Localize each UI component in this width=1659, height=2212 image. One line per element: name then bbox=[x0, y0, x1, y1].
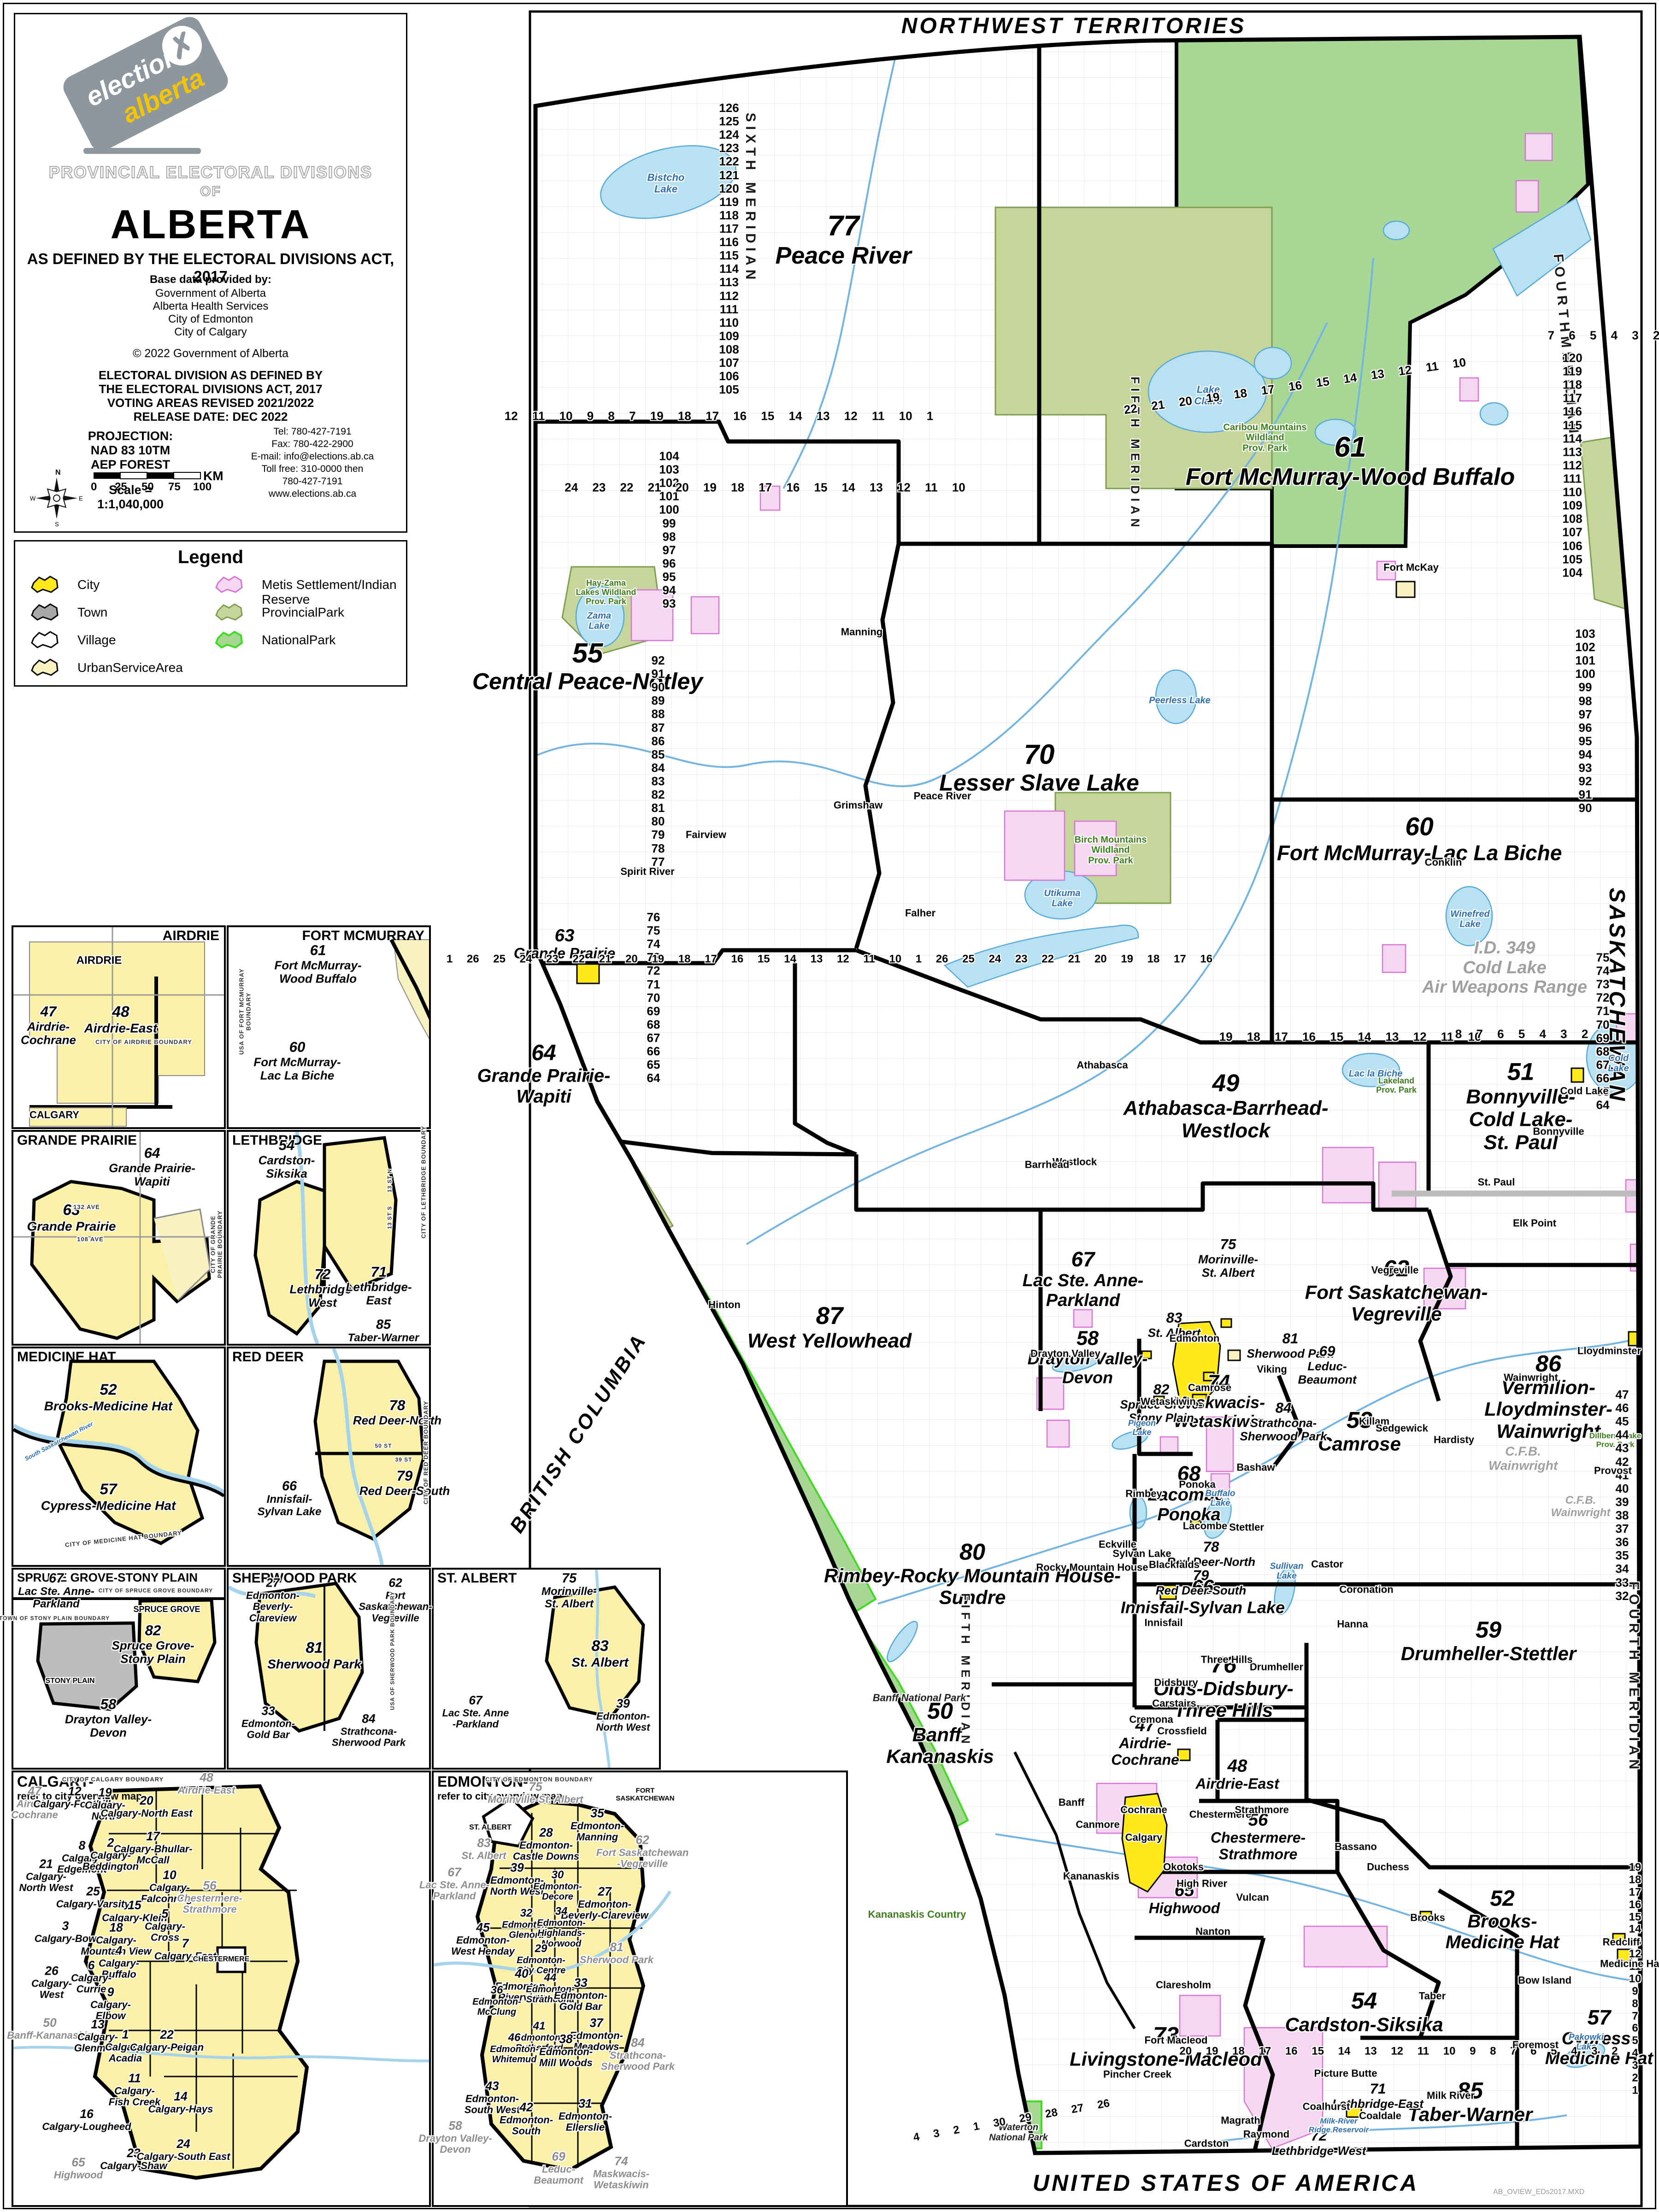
contact-web: www.elections.ab.ca bbox=[236, 488, 388, 500]
inset-fort-mcmurray: FORT MCMURRAY bbox=[227, 925, 431, 1129]
inset-airdrie-header: AIRDRIE bbox=[163, 928, 219, 944]
inset-st-albert-header: ST. ALBERT bbox=[437, 1571, 517, 1586]
base-data-3: City of Edmonton bbox=[15, 313, 406, 326]
inset-airdrie: AIRDRIE bbox=[12, 925, 226, 1129]
inset-spruce-grove: SPRUCE GROVE-STONY PLAIN bbox=[12, 1568, 226, 1770]
legend-label-town: Town bbox=[77, 605, 107, 620]
base-data-1: Government of Alberta bbox=[15, 287, 406, 300]
scale-tick-50: 50 bbox=[141, 481, 154, 494]
inset-lethbridge-header: LETHBRIDGE bbox=[232, 1133, 322, 1148]
legend-label-provpark: ProvincialPark bbox=[262, 605, 344, 620]
compass-s: S bbox=[55, 521, 59, 528]
projection-label: PROJECTION: bbox=[75, 429, 186, 443]
contact-fax: Fax: 780-422-2900 bbox=[236, 438, 388, 450]
inset-st-albert: ST. ALBERT bbox=[432, 1568, 661, 1770]
base-data-4: City of Calgary bbox=[15, 326, 406, 339]
base-data-2: Alberta Health Services bbox=[15, 300, 406, 313]
legend-swatch-metis bbox=[216, 577, 242, 592]
inset-medicine-hat-map bbox=[13, 1348, 224, 1565]
scale-tick-75: 75 bbox=[168, 481, 181, 494]
sheet-footnote: AB_OVIEW_EDs2017.MXD bbox=[1493, 2188, 1584, 2196]
inset-lethbridge-map bbox=[229, 1132, 429, 1344]
inset-red-deer-header: RED DEER bbox=[232, 1349, 304, 1365]
compass-rose-icon: N E S W bbox=[29, 468, 84, 528]
inset-grande-prairie: GRANDE PRAIRIE bbox=[12, 1130, 226, 1346]
legend-title: Legend bbox=[15, 547, 406, 568]
contact-email: E-mail: info@elections.ab.ca bbox=[236, 450, 388, 463]
inset-lethbridge: LETHBRIDGE bbox=[227, 1130, 431, 1346]
inset-fort-mcmurray-header: FORT MCMURRAY bbox=[302, 928, 424, 944]
inset-airdrie-map bbox=[13, 927, 224, 1127]
projection-block: PROJECTION: NAD 83 10TM AEP FOREST Scale… bbox=[75, 429, 186, 512]
title-block: elections alberta ✗ PROVINCIAL ELECTORAL… bbox=[14, 13, 407, 533]
inset-sherwood-park-map bbox=[229, 1570, 429, 1768]
inset-spruce-grove-header: SPRUCE GROVE-STONY PLAIN bbox=[17, 1571, 198, 1585]
inset-calgary-header: CALGARY- refer to city overview map bbox=[17, 1773, 142, 1802]
inset-edmonton-map bbox=[434, 1772, 846, 2205]
inset-calgary: CALGARY- refer to city overview map bbox=[12, 1771, 431, 2207]
inset-calgary-header-text: CALGARY- bbox=[17, 1773, 94, 1790]
inset-spruce-grove-map bbox=[13, 1570, 224, 1768]
copyright: © 2022 Government of Alberta bbox=[15, 347, 406, 360]
inset-edmonton-header-text: EDMONTON- bbox=[437, 1773, 528, 1790]
inset-calgary-subheader: refer to city overview map bbox=[17, 1790, 142, 1802]
legend-label-city: City bbox=[77, 577, 100, 592]
contact-tel: Tel: 780-427-7191 bbox=[236, 425, 388, 438]
inset-sherwood-park-header: SHERWOOD PARK bbox=[232, 1571, 357, 1586]
legend-swatch-village bbox=[32, 632, 58, 647]
inset-grande-prairie-map bbox=[13, 1132, 224, 1344]
legend-label-metis: Metis Settlement/Indian Reserve bbox=[262, 577, 406, 607]
inset-red-deer-map bbox=[229, 1348, 429, 1565]
page-title: ALBERTA bbox=[15, 201, 406, 248]
compass-n: N bbox=[55, 469, 61, 477]
contact-tollfree-1: Toll free: 310-0000 then bbox=[236, 463, 388, 475]
map-sheet: { "page":{"sheet_note":"AB_OVIEW_EDs2017… bbox=[0, 0, 1659, 2212]
projection-line-1: AEP FOREST bbox=[75, 458, 186, 472]
scale-unit: KM bbox=[203, 469, 224, 483]
ballot-slot bbox=[83, 148, 201, 154]
inset-medicine-hat-header: MEDICINE HAT bbox=[17, 1349, 116, 1365]
heading-of: OF bbox=[15, 184, 406, 200]
compass-w: W bbox=[30, 495, 36, 502]
inset-calgary-map bbox=[13, 1772, 429, 2205]
scale-tick-0: 0 bbox=[91, 481, 97, 494]
base-data-0: Base data provided by: bbox=[15, 273, 406, 286]
inset-edmonton: EDMONTON- refer to city overview map bbox=[432, 1771, 848, 2207]
projection-line-0: NAD 83 10TM bbox=[75, 443, 186, 458]
inset-edmonton-header: EDMONTON- refer to city overview map bbox=[437, 1773, 562, 1802]
legend-swatch-natlpark bbox=[216, 632, 242, 647]
legend: Legend City Town Village UrbanServiceAre… bbox=[14, 540, 407, 687]
act-line-1: THE ELECTORAL DIVISIONS ACT, 2017 bbox=[15, 382, 406, 396]
scale-bar: 0 25 50 75 100 KM bbox=[94, 471, 213, 493]
act-line-2: VOTING AREAS REVISED 2021/2022 bbox=[15, 396, 406, 410]
inset-red-deer: RED DEER bbox=[227, 1347, 431, 1567]
legend-label-urban: UrbanServiceArea bbox=[77, 660, 183, 675]
scale-bar-graphic bbox=[94, 471, 213, 481]
contact-block: Tel: 780-427-7191 Fax: 780-422-2900 E-ma… bbox=[236, 425, 388, 500]
legend-swatch-town bbox=[32, 604, 58, 620]
inset-edmonton-subheader: refer to city overview map bbox=[437, 1790, 562, 1802]
inset-grande-prairie-header: GRANDE PRAIRIE bbox=[17, 1133, 137, 1148]
legend-swatch-city bbox=[32, 577, 58, 592]
legend-label-village: Village bbox=[77, 633, 116, 647]
compass-e: E bbox=[79, 495, 83, 502]
inset-medicine-hat: MEDICINE HAT bbox=[12, 1347, 226, 1567]
contact-tollfree-2: 780-427-7191 bbox=[236, 475, 388, 488]
act-line-0: ELECTORAL DIVISION AS DEFINED BY bbox=[15, 368, 406, 382]
inset-fort-mcmurray-map bbox=[229, 927, 429, 1127]
inset-st-albert-map bbox=[434, 1570, 659, 1768]
legend-label-natlpark: NationalPark bbox=[262, 633, 335, 647]
scale-tick-25: 25 bbox=[115, 481, 127, 494]
legend-swatch-provpark bbox=[216, 604, 242, 620]
act-line-3: RELEASE DATE: DEC 2022 bbox=[15, 410, 406, 424]
inset-sherwood-park: SHERWOOD PARK bbox=[227, 1568, 431, 1770]
heading-small: PROVINCIAL ELECTORAL DIVISIONS bbox=[15, 163, 406, 182]
legend-swatch-urban bbox=[32, 659, 58, 675]
